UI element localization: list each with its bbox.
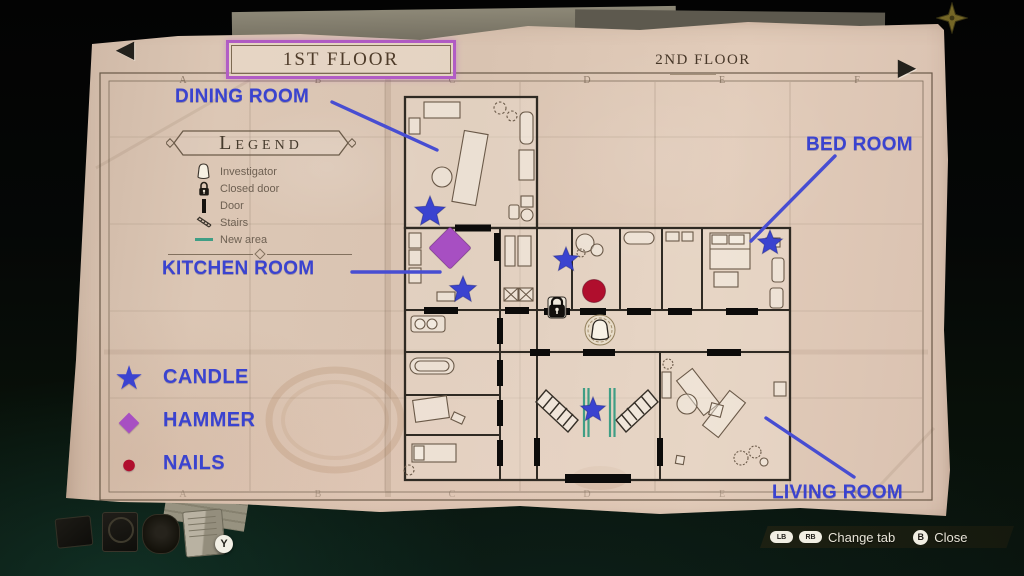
compass-icon xyxy=(936,2,968,34)
room-label-kitchen: KITCHEN ROOM xyxy=(162,258,314,280)
nails-circle-icon: ● xyxy=(110,445,148,483)
item-legend: ★ CANDLE ◆ HAMMER ● NAILS xyxy=(110,356,255,485)
investigator-marker xyxy=(585,315,615,345)
item-legend-hammer: ◆ HAMMER xyxy=(110,399,255,442)
grid-letter: F xyxy=(854,75,860,86)
map-item-key-badge: Y xyxy=(215,535,233,553)
selected-floor-label: 1ST FLOOR xyxy=(231,45,451,74)
prev-floor-arrow-icon[interactable]: ◀ xyxy=(112,36,138,64)
legend-item: Closed door xyxy=(194,180,279,197)
tab-2nd-floor-underline xyxy=(670,74,716,75)
game-map-screen: AABBCCDDEEFF xyxy=(0,0,1024,576)
legend-item: Investigator xyxy=(194,163,279,180)
change-tab-label: Change tab xyxy=(828,530,895,545)
legend-item: Stairs xyxy=(194,214,279,231)
b-button[interactable]: B xyxy=(913,530,928,545)
next-floor-arrow-icon[interactable]: ▶ xyxy=(894,54,920,82)
inventory-item-1-icon[interactable] xyxy=(55,515,94,549)
grid-letter: B xyxy=(315,489,322,500)
legend-title: Legend xyxy=(166,129,356,157)
stairs-icon xyxy=(194,216,213,229)
item-legend-candle: ★ CANDLE xyxy=(110,356,255,399)
legend-item: New area xyxy=(194,231,279,248)
grid-letter: D xyxy=(583,75,590,86)
room-label-bed: BED ROOM xyxy=(806,134,913,156)
grid-letter: D xyxy=(583,489,590,500)
legend-list: Investigator Closed door Door Stairs xyxy=(194,163,279,248)
map-paper: AABBCCDDEEFF xyxy=(58,14,954,524)
controls-bar: LB RB Change tab B Close xyxy=(760,526,1014,548)
room-label-dining: DINING ROOM xyxy=(175,86,309,108)
candle-star-icon: ★ xyxy=(110,359,148,397)
grid-letter: A xyxy=(179,489,187,500)
closed-door-icon xyxy=(194,181,213,197)
rb-button[interactable]: RB xyxy=(799,531,822,543)
tab-1st-floor[interactable]: 1ST FLOOR xyxy=(226,40,456,79)
grid-letter: E xyxy=(719,489,725,500)
circle-marker xyxy=(583,280,606,303)
legend-divider xyxy=(168,250,352,258)
grid-letter: A xyxy=(179,75,187,86)
item-legend-nails: ● NAILS xyxy=(110,442,255,485)
inventory-item-2-icon[interactable] xyxy=(102,512,138,552)
hammer-diamond-icon: ◆ xyxy=(110,402,148,440)
room-label-living: LIVING ROOM xyxy=(772,482,903,504)
legend-item: Door xyxy=(194,197,279,214)
padlock-marker xyxy=(548,297,566,318)
close-label: Close xyxy=(934,530,967,545)
legend-banner: Legend xyxy=(166,129,356,157)
door-icon xyxy=(194,199,213,213)
grid-letter: C xyxy=(449,489,456,500)
grid-letter: E xyxy=(719,75,725,86)
investigator-icon xyxy=(194,163,213,180)
tab-2nd-floor[interactable]: 2ND FLOOR xyxy=(618,52,788,69)
new-area-icon xyxy=(194,238,213,242)
lb-button[interactable]: LB xyxy=(770,531,793,543)
inventory-item-3-icon[interactable] xyxy=(142,514,180,554)
